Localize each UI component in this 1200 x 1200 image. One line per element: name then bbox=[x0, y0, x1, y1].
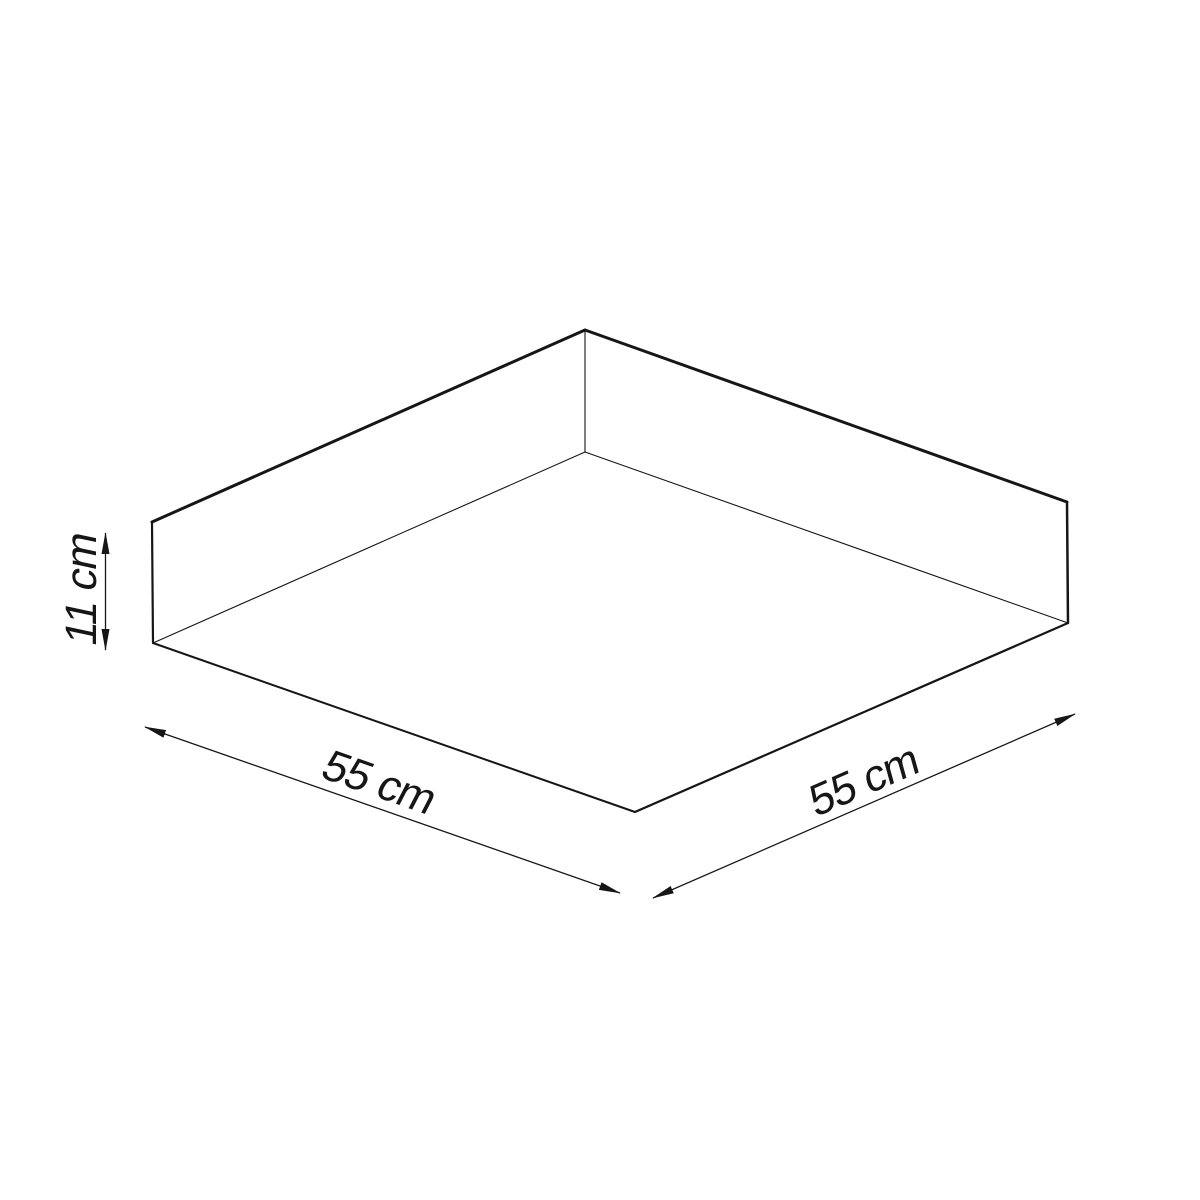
box-edge-right_top-right_bottom bbox=[1067, 502, 1068, 623]
box-edge-apex_top-right_top bbox=[585, 330, 1067, 502]
dimension-label-height: 11 cm bbox=[60, 529, 104, 650]
lamp-outline-drawing bbox=[0, 0, 1200, 1200]
dimension-diagram: 11 cm 55 cm 55 cm bbox=[0, 0, 1200, 1200]
box-edge-left_top-apex_top bbox=[152, 330, 585, 522]
box-edge-apex_inner-left_bottom bbox=[153, 452, 585, 643]
box-edge-left_top-left_bottom bbox=[152, 522, 153, 643]
